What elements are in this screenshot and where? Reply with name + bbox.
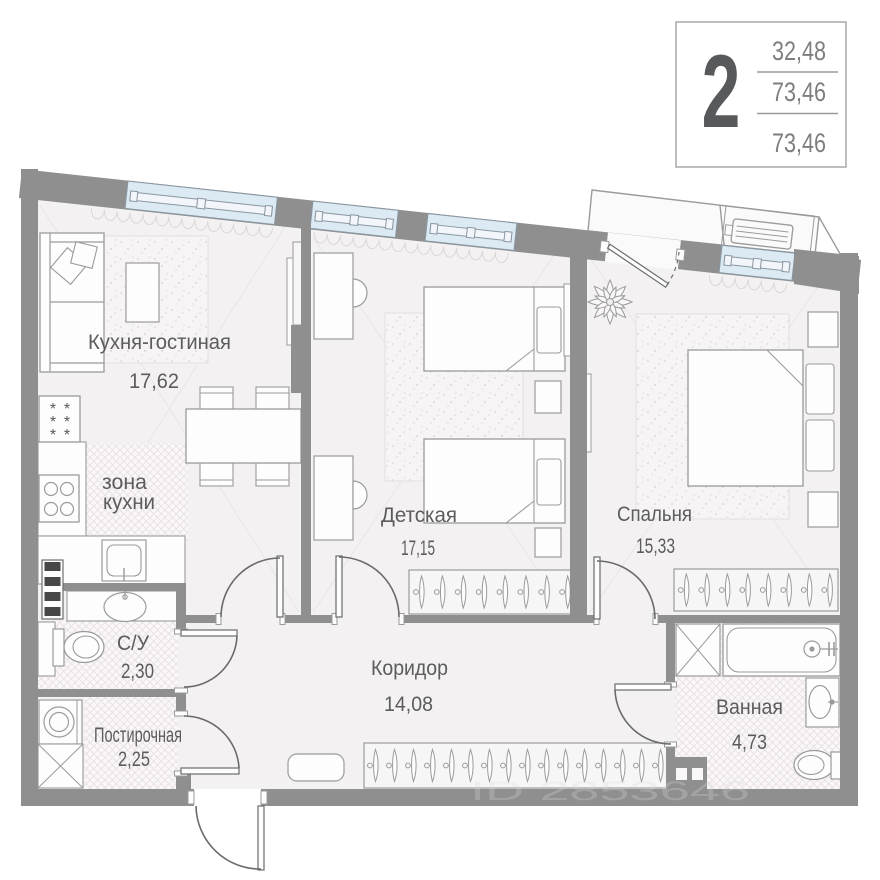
svg-text:Кухня-гостиная: Кухня-гостиная [88, 331, 231, 354]
svg-text:2,30: 2,30 [121, 660, 154, 683]
svg-text:17,62: 17,62 [129, 370, 179, 393]
svg-text:Коридор: Коридор [371, 657, 448, 680]
svg-text:4,73: 4,73 [732, 731, 767, 754]
svg-text:Детская: Детская [381, 504, 457, 527]
svg-text:*: * [64, 427, 70, 444]
svg-text:С/У: С/У [117, 632, 150, 655]
svg-text:2,25: 2,25 [118, 748, 150, 771]
svg-text:ID 2853646: ID 2853646 [470, 776, 750, 806]
svg-text:17,15: 17,15 [401, 537, 435, 560]
svg-text:Постирочная: Постирочная [94, 724, 182, 747]
svg-text:Ванная: Ванная [716, 696, 783, 719]
svg-text:73,46: 73,46 [772, 77, 826, 107]
svg-text:15,33: 15,33 [636, 535, 675, 558]
svg-text:Спальня: Спальня [617, 503, 692, 526]
svg-text:2: 2 [702, 33, 741, 149]
svg-text:32,48: 32,48 [772, 36, 826, 66]
svg-text:73,46: 73,46 [772, 128, 826, 158]
svg-text:*: * [50, 427, 56, 444]
svg-text:кухни: кухни [103, 491, 155, 514]
svg-text:14,08: 14,08 [384, 693, 433, 716]
